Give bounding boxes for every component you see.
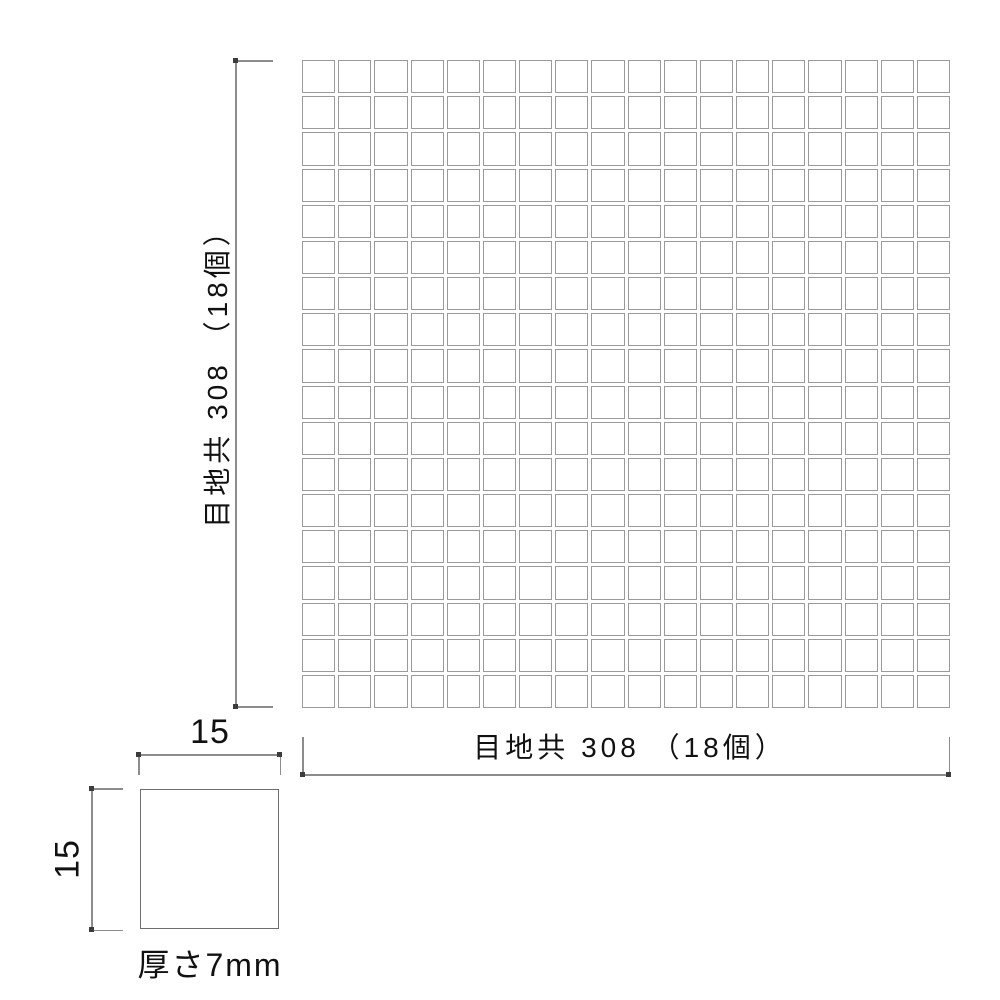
vertical-dimension-bottom-dot xyxy=(233,704,238,709)
mosaic-tile xyxy=(302,241,335,274)
mosaic-tile xyxy=(411,349,444,382)
mosaic-tile xyxy=(664,494,697,527)
mosaic-tile xyxy=(664,566,697,599)
mosaic-tile xyxy=(772,241,805,274)
mosaic-tile xyxy=(808,530,841,563)
mosaic-tile xyxy=(881,494,914,527)
mosaic-tile xyxy=(664,205,697,238)
mosaic-tile xyxy=(845,349,878,382)
mosaic-tile xyxy=(483,386,516,419)
mosaic-tile xyxy=(555,566,588,599)
mosaic-tile xyxy=(483,349,516,382)
mosaic-tile xyxy=(338,205,371,238)
mosaic-tile xyxy=(374,386,407,419)
mosaic-tile xyxy=(628,96,661,129)
mosaic-tile xyxy=(736,386,769,419)
mosaic-tile xyxy=(845,494,878,527)
mosaic-tile xyxy=(555,205,588,238)
mosaic-tile xyxy=(917,494,950,527)
mosaic-tile xyxy=(374,349,407,382)
horizontal-dimension-line xyxy=(302,774,950,776)
mosaic-tile xyxy=(411,169,444,202)
mosaic-tile xyxy=(628,205,661,238)
mosaic-tile xyxy=(772,349,805,382)
mosaic-tile xyxy=(591,132,624,165)
mosaic-tile xyxy=(338,675,371,708)
mosaic-tile xyxy=(519,566,552,599)
mosaic-tile xyxy=(881,458,914,491)
mosaic-tile xyxy=(591,639,624,672)
mosaic-tile xyxy=(555,277,588,310)
mosaic-tile xyxy=(664,241,697,274)
mosaic-tile xyxy=(736,169,769,202)
mosaic-tile xyxy=(374,60,407,93)
mosaic-tile xyxy=(483,169,516,202)
mosaic-tile xyxy=(411,132,444,165)
mosaic-tile xyxy=(808,169,841,202)
mosaic-tile xyxy=(591,277,624,310)
tile-width-right-tick xyxy=(280,754,282,775)
mosaic-tile xyxy=(519,241,552,274)
mosaic-tile xyxy=(808,313,841,346)
mosaic-tile xyxy=(411,458,444,491)
mosaic-tile xyxy=(845,422,878,455)
single-tile-detail xyxy=(140,789,279,929)
mosaic-tile xyxy=(447,639,480,672)
mosaic-tile xyxy=(736,60,769,93)
mosaic-tile xyxy=(772,169,805,202)
vertical-dimension-bottom-tick xyxy=(236,706,273,708)
mosaic-tile xyxy=(736,603,769,636)
mosaic-tile xyxy=(338,422,371,455)
mosaic-tile xyxy=(447,494,480,527)
mosaic-tile xyxy=(664,675,697,708)
mosaic-tile xyxy=(881,96,914,129)
tile-width-left-dot xyxy=(136,752,141,757)
mosaic-tile xyxy=(881,603,914,636)
mosaic-tile xyxy=(628,530,661,563)
vertical-dimension-top-tick xyxy=(236,60,273,62)
mosaic-tile xyxy=(628,566,661,599)
mosaic-tile xyxy=(411,639,444,672)
mosaic-tile xyxy=(555,132,588,165)
mosaic-tile xyxy=(736,277,769,310)
mosaic-tile xyxy=(772,386,805,419)
mosaic-tile xyxy=(808,494,841,527)
mosaic-tile xyxy=(374,277,407,310)
mosaic-tile xyxy=(302,96,335,129)
mosaic-tile xyxy=(736,132,769,165)
mosaic-tile xyxy=(447,386,480,419)
mosaic-tile xyxy=(519,458,552,491)
mosaic-tile xyxy=(374,530,407,563)
tile-thickness-label: 厚さ7mm xyxy=(137,940,282,986)
mosaic-tile xyxy=(736,313,769,346)
mosaic-tile xyxy=(374,169,407,202)
mosaic-tile xyxy=(700,603,733,636)
mosaic-tile xyxy=(447,566,480,599)
vertical-dimension-top-dot xyxy=(233,58,238,63)
mosaic-tile xyxy=(628,349,661,382)
mosaic-tile xyxy=(736,494,769,527)
mosaic-tile xyxy=(374,132,407,165)
mosaic-tile xyxy=(338,132,371,165)
mosaic-tile xyxy=(555,422,588,455)
mosaic-tile xyxy=(411,422,444,455)
mosaic-tile xyxy=(483,205,516,238)
mosaic-tile xyxy=(628,313,661,346)
mosaic-tile xyxy=(845,132,878,165)
mosaic-tile xyxy=(881,277,914,310)
mosaic-tile xyxy=(917,277,950,310)
horizontal-dimension-left-tick xyxy=(302,737,304,775)
mosaic-tile xyxy=(808,603,841,636)
mosaic-tile xyxy=(808,241,841,274)
mosaic-tile xyxy=(302,530,335,563)
mosaic-tile xyxy=(772,675,805,708)
mosaic-tile xyxy=(411,205,444,238)
mosaic-tile xyxy=(917,530,950,563)
mosaic-tile xyxy=(881,132,914,165)
mosaic-tile xyxy=(374,639,407,672)
mosaic-tile xyxy=(881,566,914,599)
mosaic-tile xyxy=(808,132,841,165)
mosaic-tile xyxy=(447,169,480,202)
mosaic-tile xyxy=(411,675,444,708)
mosaic-tile xyxy=(302,386,335,419)
mosaic-tile xyxy=(881,349,914,382)
mosaic-tile xyxy=(772,639,805,672)
mosaic-tile xyxy=(411,241,444,274)
tile-width-left-tick xyxy=(138,754,140,775)
mosaic-tile xyxy=(845,566,878,599)
mosaic-tile xyxy=(447,313,480,346)
tile-dimension-diagram: 目地共 308 （18個） 目地共 308 （18個） 15 15 厚さ7mm xyxy=(0,0,1000,1000)
mosaic-tile xyxy=(302,277,335,310)
mosaic-tile xyxy=(591,313,624,346)
mosaic-tile xyxy=(519,313,552,346)
mosaic-tile xyxy=(664,349,697,382)
mosaic-tile xyxy=(374,566,407,599)
mosaic-tile xyxy=(374,313,407,346)
mosaic-tile xyxy=(628,603,661,636)
mosaic-tile xyxy=(700,458,733,491)
mosaic-tile xyxy=(881,313,914,346)
mosaic-tile xyxy=(519,639,552,672)
mosaic-tile xyxy=(772,566,805,599)
tile-width-dimension-line xyxy=(138,754,281,756)
tile-height-bottom-dot xyxy=(89,927,94,932)
mosaic-tile xyxy=(591,60,624,93)
mosaic-tile xyxy=(338,277,371,310)
mosaic-tile xyxy=(483,96,516,129)
mosaic-tile xyxy=(591,169,624,202)
mosaic-tile xyxy=(772,422,805,455)
mosaic-tile xyxy=(591,458,624,491)
mosaic-tile xyxy=(881,169,914,202)
mosaic-tile xyxy=(338,494,371,527)
mosaic-tile xyxy=(411,530,444,563)
mosaic-tile xyxy=(845,530,878,563)
mosaic-tile xyxy=(917,458,950,491)
mosaic-tile xyxy=(591,603,624,636)
mosaic-tile xyxy=(808,458,841,491)
mosaic-tile xyxy=(555,349,588,382)
mosaic-tile xyxy=(917,132,950,165)
mosaic-tile xyxy=(411,313,444,346)
mosaic-tile xyxy=(664,132,697,165)
mosaic-tile xyxy=(808,277,841,310)
mosaic-tile xyxy=(628,277,661,310)
mosaic-tile xyxy=(917,205,950,238)
mosaic-tile xyxy=(411,96,444,129)
mosaic-tile xyxy=(519,132,552,165)
mosaic-tile xyxy=(447,132,480,165)
tile-width-label: 15 xyxy=(190,713,230,752)
mosaic-tile xyxy=(881,60,914,93)
mosaic-tile xyxy=(700,675,733,708)
mosaic-tile xyxy=(664,169,697,202)
mosaic-tile xyxy=(591,96,624,129)
mosaic-tile xyxy=(664,277,697,310)
mosaic-tile xyxy=(483,60,516,93)
mosaic-tile xyxy=(772,277,805,310)
mosaic-tile xyxy=(447,603,480,636)
mosaic-tile xyxy=(808,96,841,129)
mosaic-tile xyxy=(664,422,697,455)
mosaic-tile xyxy=(881,530,914,563)
mosaic-tile xyxy=(555,458,588,491)
mosaic-tile xyxy=(881,205,914,238)
mosaic-tile xyxy=(845,169,878,202)
mosaic-tile xyxy=(519,603,552,636)
mosaic-tile xyxy=(591,241,624,274)
mosaic-tile xyxy=(483,494,516,527)
mosaic-tile xyxy=(374,603,407,636)
mosaic-tile xyxy=(519,96,552,129)
mosaic-tile xyxy=(374,96,407,129)
mosaic-tile xyxy=(845,675,878,708)
mosaic-tile xyxy=(483,639,516,672)
mosaic-tile xyxy=(917,96,950,129)
mosaic-tile xyxy=(917,603,950,636)
mosaic-tile xyxy=(483,277,516,310)
mosaic-tile xyxy=(700,422,733,455)
mosaic-tile xyxy=(700,132,733,165)
mosaic-tile xyxy=(664,60,697,93)
mosaic-tile xyxy=(772,313,805,346)
horizontal-dimension-left-dot xyxy=(300,772,305,777)
mosaic-tile xyxy=(591,675,624,708)
mosaic-tile xyxy=(628,422,661,455)
mosaic-tile xyxy=(447,277,480,310)
mosaic-tile xyxy=(736,422,769,455)
mosaic-tile xyxy=(302,349,335,382)
mosaic-tile xyxy=(447,96,480,129)
mosaic-tile xyxy=(374,205,407,238)
mosaic-tile xyxy=(700,313,733,346)
mosaic-tile xyxy=(881,241,914,274)
mosaic-tile xyxy=(845,96,878,129)
mosaic-tile xyxy=(736,458,769,491)
mosaic-tile xyxy=(808,205,841,238)
mosaic-tile xyxy=(519,60,552,93)
mosaic-tile xyxy=(700,277,733,310)
mosaic-tile xyxy=(447,349,480,382)
mosaic-tile xyxy=(338,169,371,202)
mosaic-tile xyxy=(917,386,950,419)
mosaic-tile xyxy=(302,205,335,238)
mosaic-tile xyxy=(845,386,878,419)
mosaic-tile xyxy=(700,205,733,238)
mosaic-tile xyxy=(555,639,588,672)
mosaic-tile xyxy=(338,96,371,129)
mosaic-tile xyxy=(302,603,335,636)
mosaic-tile xyxy=(845,241,878,274)
mosaic-tile xyxy=(483,530,516,563)
mosaic-tile xyxy=(591,530,624,563)
mosaic-tile xyxy=(664,530,697,563)
mosaic-tile xyxy=(772,494,805,527)
mosaic-tile xyxy=(808,422,841,455)
mosaic-tile xyxy=(700,60,733,93)
mosaic-tile xyxy=(772,132,805,165)
mosaic-tile xyxy=(845,458,878,491)
mosaic-tile xyxy=(555,313,588,346)
mosaic-tile xyxy=(519,205,552,238)
mosaic-tile xyxy=(374,494,407,527)
mosaic-tile xyxy=(338,241,371,274)
mosaic-tile xyxy=(374,241,407,274)
mosaic-tile xyxy=(664,386,697,419)
tile-height-bottom-tick xyxy=(92,930,123,932)
mosaic-tile xyxy=(628,458,661,491)
mosaic-tile xyxy=(700,241,733,274)
mosaic-tile xyxy=(483,422,516,455)
mosaic-tile xyxy=(881,386,914,419)
mosaic-tile xyxy=(917,169,950,202)
mosaic-tile xyxy=(519,675,552,708)
mosaic-tile xyxy=(591,205,624,238)
mosaic-tile xyxy=(374,675,407,708)
mosaic-tile xyxy=(736,205,769,238)
mosaic-tile xyxy=(700,349,733,382)
mosaic-tile xyxy=(555,530,588,563)
mosaic-tile xyxy=(845,603,878,636)
mosaic-tile xyxy=(845,277,878,310)
mosaic-tile xyxy=(483,566,516,599)
mosaic-tile xyxy=(772,60,805,93)
mosaic-tile xyxy=(447,422,480,455)
mosaic-tile xyxy=(555,96,588,129)
mosaic-tile xyxy=(302,169,335,202)
mosaic-tile xyxy=(700,530,733,563)
mosaic-tile xyxy=(700,386,733,419)
mosaic-tile xyxy=(338,530,371,563)
tile-height-top-tick xyxy=(92,788,123,790)
mosaic-tile xyxy=(736,349,769,382)
tile-width-right-dot xyxy=(277,752,282,757)
mosaic-tile xyxy=(736,566,769,599)
mosaic-tile xyxy=(338,603,371,636)
mosaic-tile xyxy=(519,169,552,202)
tile-height-dimension-line xyxy=(91,789,93,931)
mosaic-tile xyxy=(808,386,841,419)
mosaic-tile xyxy=(664,313,697,346)
mosaic-tile xyxy=(519,422,552,455)
mosaic-tile xyxy=(736,241,769,274)
mosaic-tile xyxy=(808,60,841,93)
mosaic-tile xyxy=(808,639,841,672)
mosaic-tile xyxy=(302,639,335,672)
mosaic-tile xyxy=(772,603,805,636)
horizontal-dimension-right-tick xyxy=(949,737,951,775)
mosaic-tile xyxy=(302,458,335,491)
mosaic-tile xyxy=(338,349,371,382)
mosaic-tile xyxy=(700,169,733,202)
mosaic-tile xyxy=(302,566,335,599)
mosaic-tile xyxy=(483,313,516,346)
mosaic-tile xyxy=(881,422,914,455)
mosaic-tile xyxy=(628,386,661,419)
mosaic-tile xyxy=(917,675,950,708)
mosaic-tile xyxy=(411,386,444,419)
mosaic-tile xyxy=(628,675,661,708)
mosaic-tile xyxy=(411,60,444,93)
mosaic-tile xyxy=(338,566,371,599)
mosaic-tile xyxy=(917,60,950,93)
mosaic-tile xyxy=(808,566,841,599)
mosaic-tile xyxy=(664,639,697,672)
mosaic-tile xyxy=(483,132,516,165)
mosaic-tile xyxy=(519,349,552,382)
mosaic-tile xyxy=(772,530,805,563)
mosaic-tile xyxy=(808,349,841,382)
mosaic-tile xyxy=(845,60,878,93)
mosaic-tile xyxy=(483,603,516,636)
mosaic-tile xyxy=(772,205,805,238)
mosaic-tile xyxy=(338,458,371,491)
mosaic-tile xyxy=(664,458,697,491)
mosaic-tile xyxy=(628,639,661,672)
mosaic-tile xyxy=(736,96,769,129)
mosaic-tile xyxy=(447,458,480,491)
mosaic-tile xyxy=(808,675,841,708)
mosaic-tile xyxy=(302,675,335,708)
mosaic-tile xyxy=(555,494,588,527)
mosaic-tile xyxy=(591,386,624,419)
mosaic-tile xyxy=(519,277,552,310)
mosaic-tile xyxy=(555,241,588,274)
mosaic-tile xyxy=(700,639,733,672)
mosaic-tile xyxy=(302,60,335,93)
mosaic-tile xyxy=(591,494,624,527)
mosaic-tile xyxy=(555,603,588,636)
mosaic-tile xyxy=(411,603,444,636)
mosaic-tile xyxy=(555,386,588,419)
mosaic-tile xyxy=(628,60,661,93)
horizontal-dimension-right-dot xyxy=(946,772,951,777)
mosaic-tile xyxy=(664,96,697,129)
mosaic-tile xyxy=(591,566,624,599)
mosaic-tile xyxy=(411,277,444,310)
mosaic-tile xyxy=(628,169,661,202)
mosaic-tile xyxy=(302,132,335,165)
mosaic-tile xyxy=(917,639,950,672)
mosaic-tile xyxy=(483,675,516,708)
mosaic-tile xyxy=(845,313,878,346)
mosaic-tile xyxy=(772,96,805,129)
